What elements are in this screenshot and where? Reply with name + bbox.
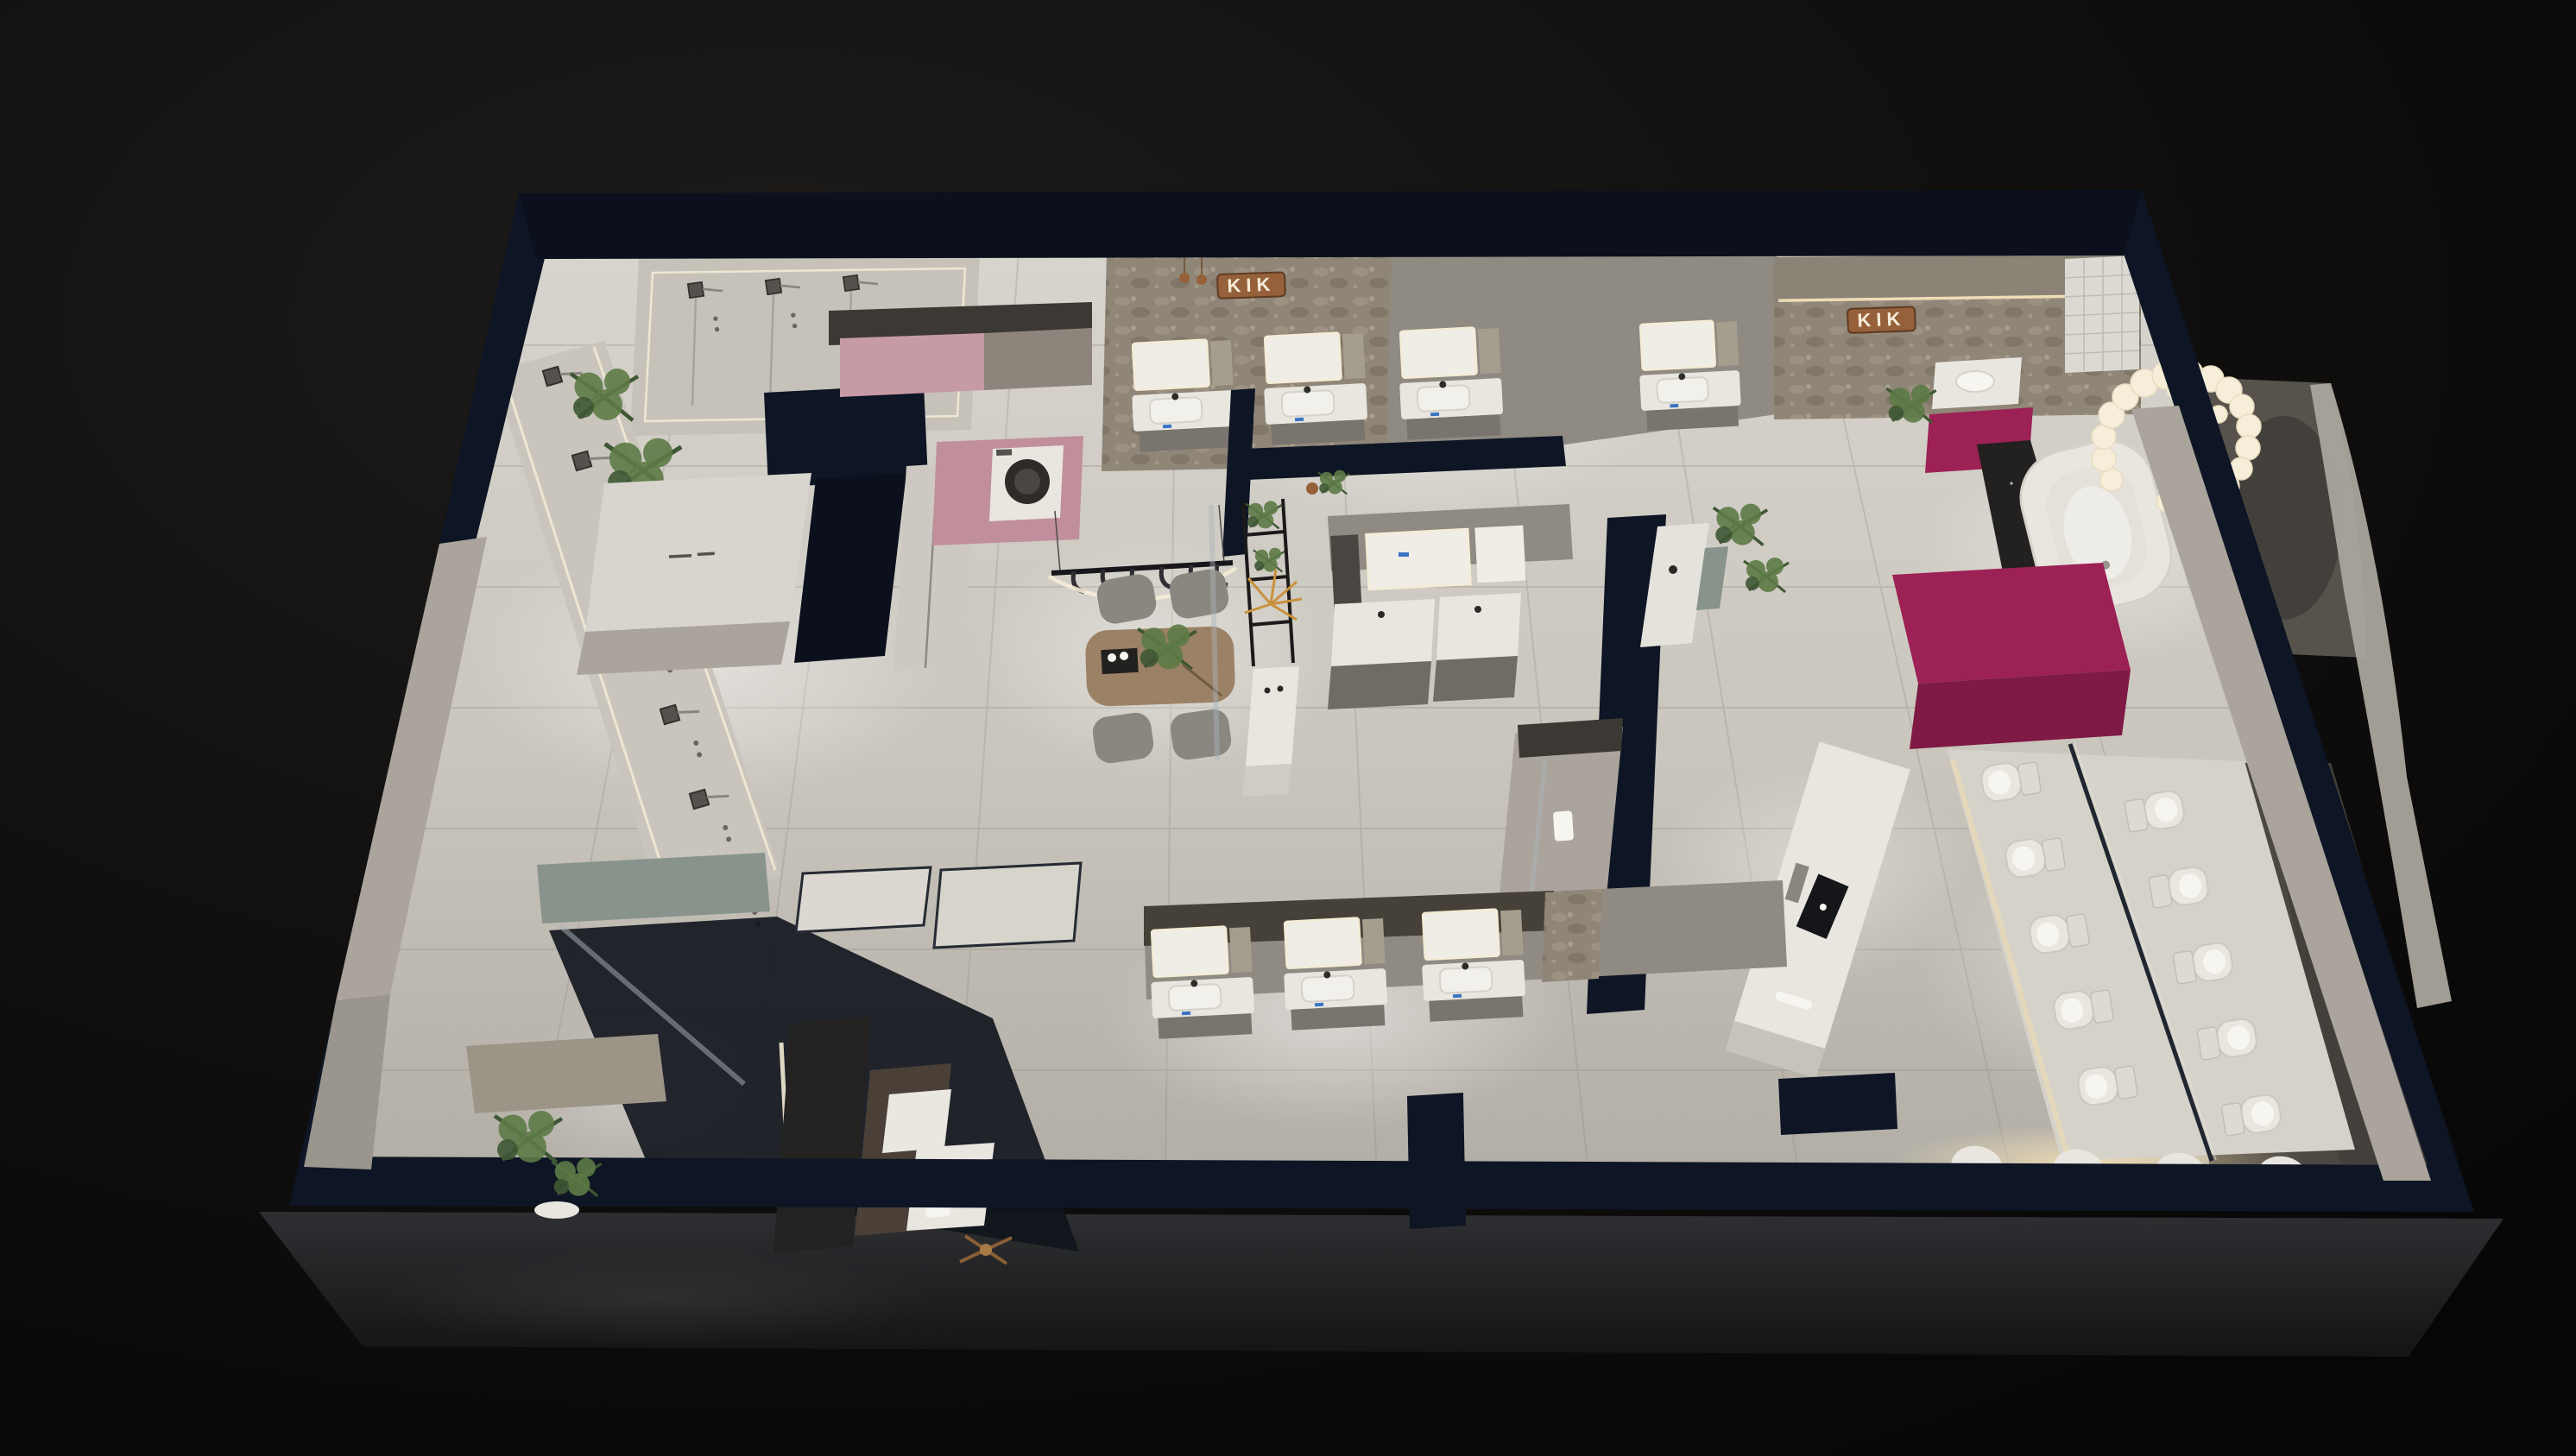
- bottom-wall-band: [289, 1157, 2474, 1212]
- washer-controls: [996, 449, 1012, 456]
- apron-light-spill: [371, 1251, 941, 1346]
- stone-column: [1542, 889, 1602, 982]
- washer-door-glass: [1014, 469, 1040, 495]
- table-tray: [1101, 648, 1138, 674]
- blue-price-tag: [1398, 552, 1409, 557]
- island-mirror-2: [1474, 526, 1525, 583]
- pink-accent-wall: [840, 333, 984, 397]
- vanity-unit: [1637, 319, 1742, 431]
- island-base: [1433, 656, 1518, 702]
- brand-plaque-2: KIK: [1847, 306, 1916, 333]
- vanity-unit: [1397, 326, 1504, 440]
- brand-logo-text-2: KIK: [1857, 308, 1906, 331]
- island-basin-top: [1331, 599, 1435, 666]
- taupe-wall: [984, 328, 1092, 390]
- sage-room-wall: [537, 853, 770, 923]
- faucet-dot: [1669, 565, 1677, 574]
- faucet-dot: [1474, 606, 1481, 613]
- render-stage: KIK KIK: [0, 0, 2576, 1456]
- magenta-desk-top: [1892, 563, 2131, 684]
- vessel-basin: [1956, 371, 1994, 392]
- wall-hung-basin-slab: [1246, 666, 1299, 766]
- vanity-unit: [1129, 338, 1236, 452]
- vanity-unit: [1281, 917, 1388, 1031]
- vanity-unit: [1261, 331, 1368, 445]
- glass-room-top-slab: [796, 867, 931, 932]
- white-planter-pot: [534, 1201, 579, 1219]
- reception-desk-top: [585, 473, 811, 632]
- vanity-unit: [1148, 925, 1255, 1039]
- reception-navy-wall: [764, 384, 928, 488]
- hanging-pot: [1306, 482, 1318, 495]
- vanity-mirror: [882, 1089, 951, 1153]
- sparkle: [2010, 482, 2012, 484]
- glass-room-top-slab: [934, 863, 1081, 948]
- vanity-unit: [1419, 908, 1526, 1022]
- faucet-dot: [1378, 611, 1385, 618]
- tray-cup: [1120, 652, 1128, 660]
- faucet-dot: [1265, 688, 1271, 694]
- island-basin-top: [1436, 593, 1521, 660]
- brand-logo-text-1: KIK: [1227, 274, 1276, 297]
- hanging-towel: [1553, 810, 1574, 841]
- entrance-wall: [466, 1034, 666, 1113]
- tray-cup: [1108, 653, 1116, 662]
- island-base: [1328, 661, 1431, 709]
- basin-slab-front: [1242, 764, 1291, 797]
- island-mirror: [1366, 529, 1470, 589]
- top-wall-band: [519, 190, 2142, 259]
- partition-top-band: [1518, 718, 1623, 758]
- showroom-floorplan-render: KIK KIK: [0, 0, 2576, 1456]
- navy-stub-wall: [1778, 1073, 1897, 1135]
- brand-plaque-1: KIK: [1217, 272, 1285, 299]
- faucet-dot: [1278, 686, 1284, 692]
